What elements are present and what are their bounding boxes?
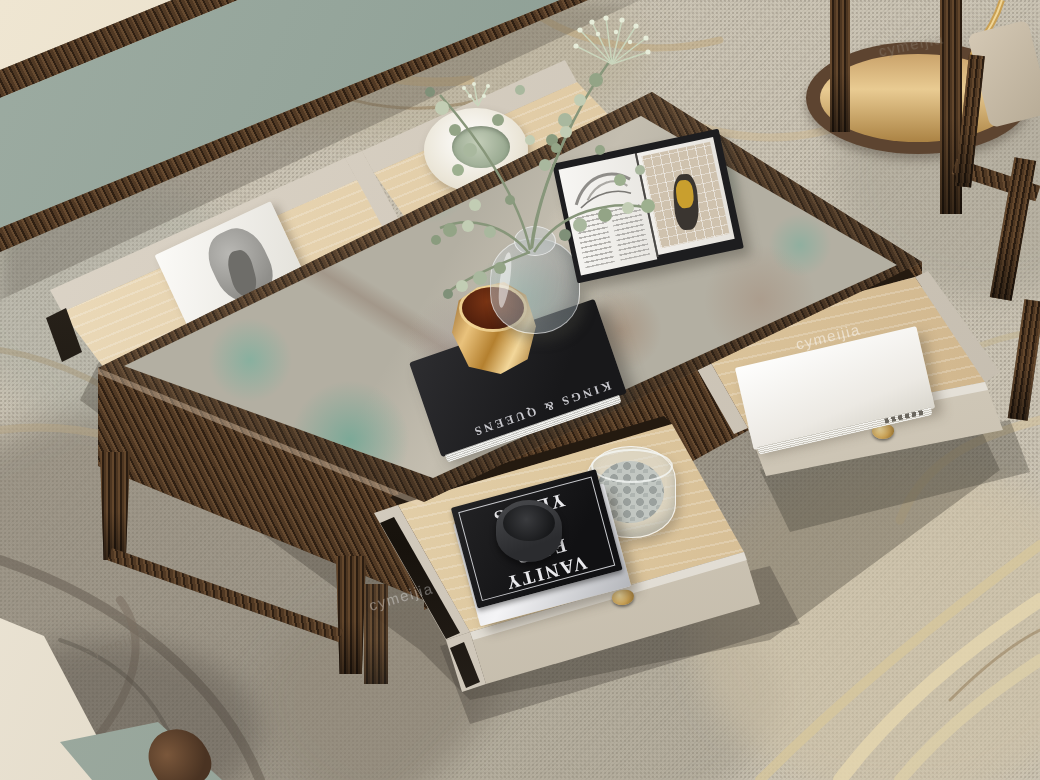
- table-leg: [364, 584, 388, 684]
- side-table-leg: [830, 0, 850, 132]
- candle-cup: [496, 500, 562, 562]
- table-leg: [100, 452, 130, 560]
- candle-wax: [503, 505, 555, 541]
- queen-annes-lace: [464, 18, 648, 106]
- living-room-photo: VANITY FAIR 100 YEARS KINGS & QUEENS: [0, 0, 1040, 780]
- plant-eucalyptus: [360, 0, 700, 340]
- table-leg: [336, 556, 366, 674]
